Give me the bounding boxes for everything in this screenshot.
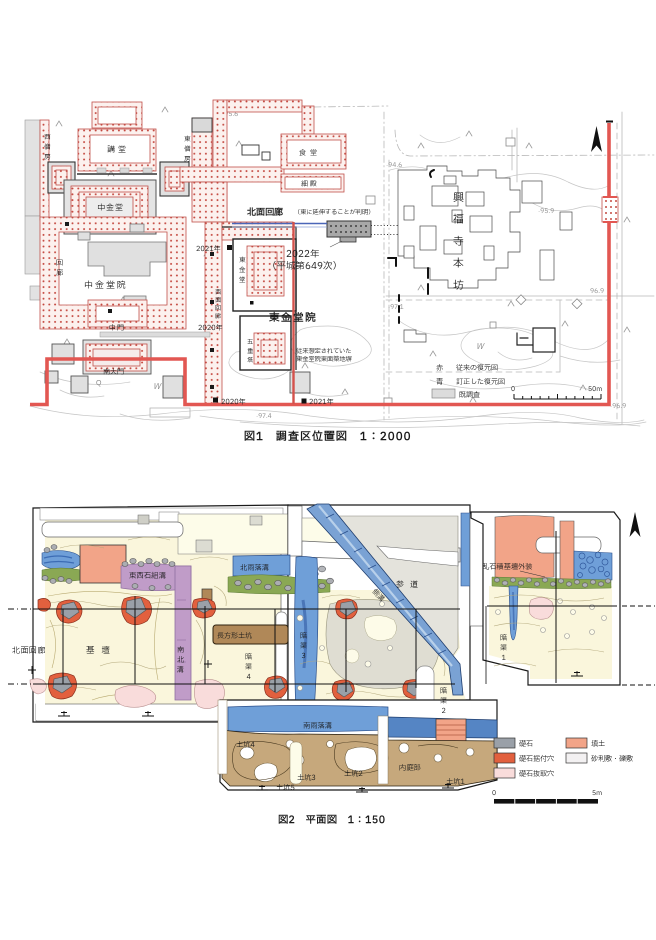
svg-text:講堂: 講堂: [107, 144, 129, 156]
svg-text:·94.6: ·94.6: [386, 160, 402, 170]
svg-text:·96.9: ·96.9: [610, 401, 626, 411]
svg-text:0: 0: [492, 788, 496, 798]
svg-text:興: 興: [453, 189, 464, 206]
svg-text:礎石据付穴: 礎石据付穴: [518, 754, 554, 765]
svg-text:参道: 参道: [395, 579, 424, 591]
svg-text:·95.9: ·95.9: [538, 206, 554, 216]
svg-text:東金堂院: 東金堂院: [269, 310, 317, 326]
svg-text:礎石: 礎石: [518, 740, 533, 750]
svg-text:（平城第649次）: （平城第649次）: [267, 260, 342, 274]
svg-text:中金堂: 中金堂: [97, 202, 124, 214]
svg-text:廊: 廊: [56, 269, 63, 279]
svg-text:赤: 赤: [435, 364, 443, 374]
svg-text:（東に延伸することが判明）: （東に延伸することが判明）: [294, 207, 374, 217]
svg-text:·97.4: ·97.4: [256, 411, 272, 421]
svg-text:渠: 渠: [300, 641, 308, 652]
svg-text:土坑1: 土坑1: [446, 777, 465, 788]
svg-text:砂利敷・礫敷: 砂利敷・礫敷: [591, 754, 633, 765]
svg-text:長方形土坑: 長方形土坑: [217, 631, 252, 642]
svg-text:坊: 坊: [453, 277, 464, 294]
svg-text:暗: 暗: [440, 687, 447, 697]
svg-text:南雨落溝: 南雨落溝: [303, 721, 332, 732]
svg-text:乱石積基壇外装: 乱石積基壇外装: [482, 562, 533, 573]
svg-text:堂: 堂: [239, 275, 246, 285]
svg-text:南: 南: [177, 646, 184, 656]
svg-text:南大門: 南大門: [103, 368, 124, 378]
svg-text:内庭部: 内庭部: [399, 763, 421, 774]
svg-text:50m: 50m: [588, 384, 602, 394]
svg-text:寺: 寺: [453, 233, 464, 250]
svg-text:細殿: 細殿: [301, 179, 319, 190]
svg-text:填土: 填土: [590, 740, 605, 750]
svg-text:東金堂院東面築地塀: 東金堂院東面築地塀: [296, 354, 352, 364]
svg-text:4: 4: [247, 673, 252, 683]
svg-text:図2 平面図 1：150: 図2 平面図 1：150: [278, 813, 386, 828]
svg-text:暗: 暗: [300, 632, 307, 642]
svg-text:房: 房: [44, 152, 51, 162]
svg-text:96.9: 96.9: [590, 286, 604, 296]
svg-text:5m: 5m: [592, 788, 602, 798]
svg-text:北雨落溝: 北雨落溝: [240, 563, 269, 574]
svg-text:図1 調査区位置図 1：2000: 図1 調査区位置図 1：2000: [244, 428, 412, 445]
svg-text:回: 回: [56, 259, 63, 269]
svg-text:既調査: 既調査: [458, 391, 481, 401]
svg-text:西: 西: [44, 132, 51, 142]
svg-text:2021年: 2021年: [196, 244, 221, 255]
svg-text:土坑2: 土坑2: [344, 769, 363, 780]
svg-text:重: 重: [247, 347, 253, 356]
svg-text:五: 五: [247, 338, 253, 347]
svg-text:東西石組溝: 東西石組溝: [129, 571, 167, 582]
svg-text:訂正した復元図: 訂正した復元図: [456, 377, 505, 388]
svg-text:房: 房: [184, 154, 191, 164]
svg-text:青: 青: [436, 378, 443, 388]
svg-text:0: 0: [511, 384, 515, 394]
svg-text:僧: 僧: [184, 144, 191, 154]
svg-text:僧: 僧: [44, 142, 51, 152]
svg-text:東: 東: [239, 255, 246, 265]
svg-text:基壇: 基壇: [86, 644, 117, 657]
svg-text:北面回廊: 北面回廊: [12, 645, 46, 657]
svg-text:土坑5: 土坑5: [276, 783, 295, 794]
svg-text:土坑3: 土坑3: [297, 773, 316, 784]
svg-text:東: 東: [184, 134, 191, 144]
svg-text:溝: 溝: [177, 666, 184, 676]
svg-text:Q: Q: [96, 379, 102, 389]
svg-text:塔: 塔: [247, 356, 253, 365]
svg-text:土坑4: 土坑4: [236, 740, 255, 751]
svg-text:北: 北: [177, 656, 184, 666]
svg-text:3: 3: [302, 652, 306, 662]
svg-text:暗: 暗: [245, 653, 252, 663]
svg-text:渠: 渠: [500, 643, 508, 654]
svg-text:2020年: 2020年: [221, 397, 246, 408]
svg-text:礎石抜取穴: 礎石抜取穴: [518, 770, 554, 780]
svg-text:渠: 渠: [245, 662, 253, 673]
svg-text:金: 金: [239, 265, 246, 275]
svg-text:1: 1: [502, 654, 507, 664]
svg-text:2020年: 2020年: [198, 323, 223, 334]
svg-text:廊: 廊: [214, 312, 221, 321]
svg-text:食堂: 食堂: [299, 149, 321, 159]
svg-text:2021年: 2021年: [309, 397, 334, 408]
svg-text:渠: 渠: [440, 696, 448, 707]
svg-text:福: 福: [453, 211, 464, 228]
svg-text:本: 本: [453, 255, 464, 272]
svg-text:暗: 暗: [500, 634, 507, 644]
svg-text:従来の復元図: 従来の復元図: [456, 363, 498, 374]
svg-text:·97.1: ·97.1: [388, 302, 404, 312]
svg-text:中金堂院: 中金堂院: [84, 278, 128, 292]
svg-text:2: 2: [442, 707, 446, 717]
svg-text:北面回廊: 北面回廊: [247, 205, 284, 219]
